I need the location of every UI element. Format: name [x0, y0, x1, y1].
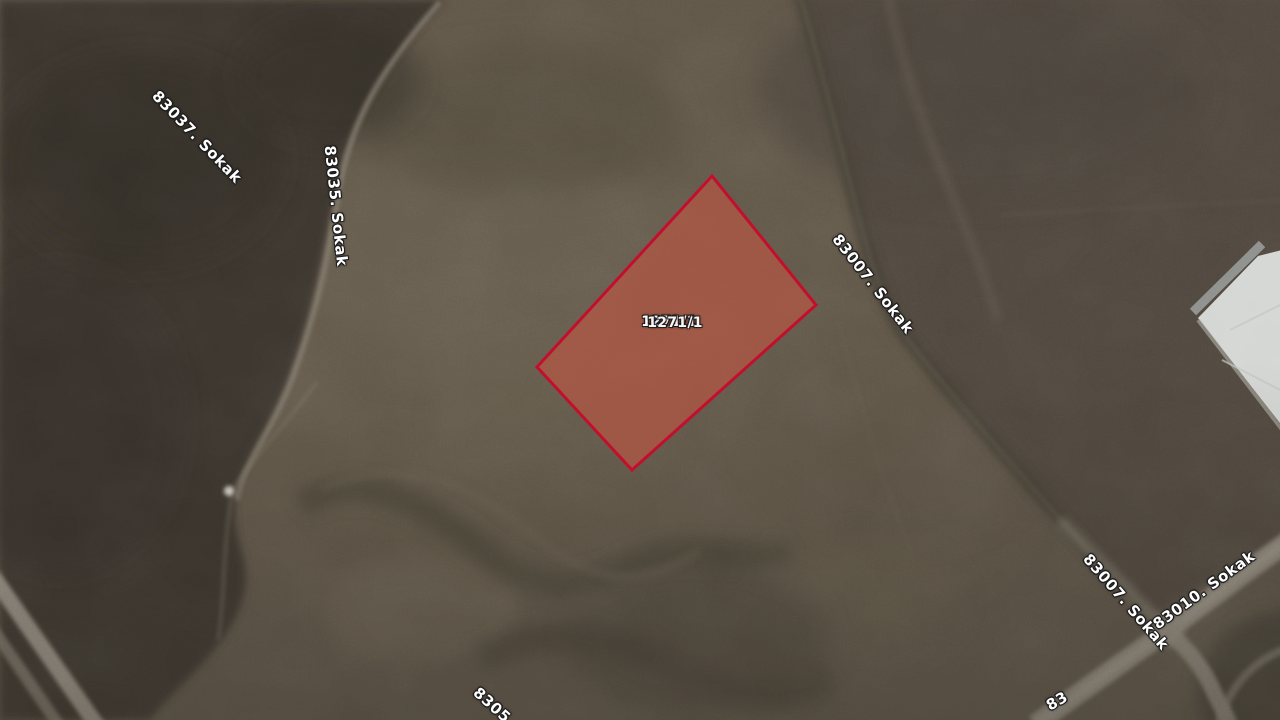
aerial-imagery — [0, 0, 1280, 720]
map-viewport[interactable]: 1271/1 1271/1 83037. Sokak83035. Sokak83… — [0, 0, 1280, 720]
